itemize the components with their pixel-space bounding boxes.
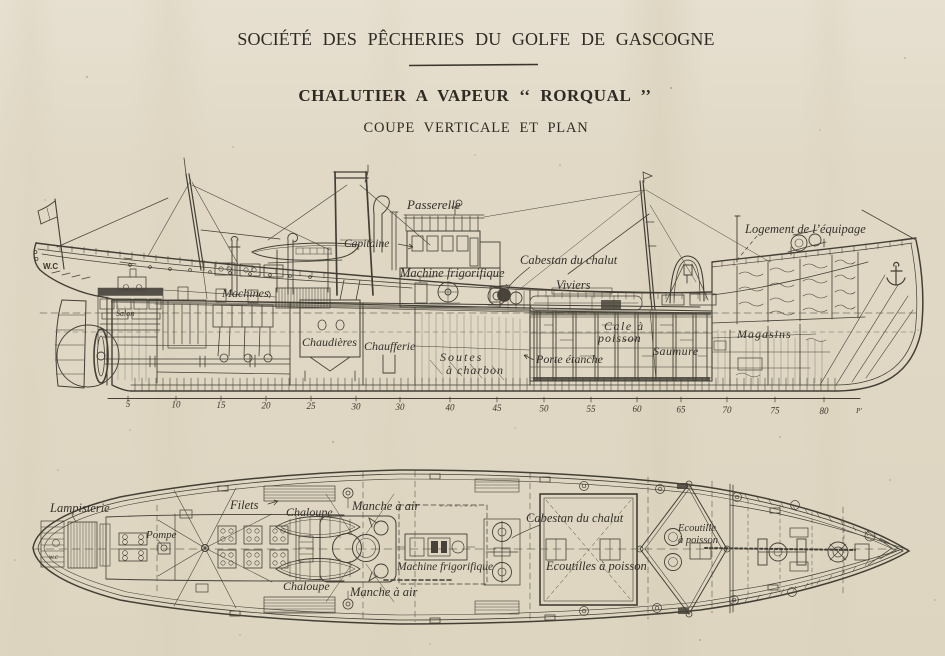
svg-text:SOCIÉTÉ DES PÊCHERIES DU GOLFE: SOCIÉTÉ DES PÊCHERIES DU GOLFE DE GASCOG… <box>237 28 714 49</box>
svg-text:Chaudières: Chaudières <box>302 335 357 349</box>
svg-text:70: 70 <box>723 405 733 415</box>
svg-text:W.C: W.C <box>43 262 58 271</box>
svg-text:50: 50 <box>540 404 550 414</box>
svg-text:Pompe: Pompe <box>145 529 177 541</box>
svg-text:55: 55 <box>587 404 597 414</box>
svg-text:5: 5 <box>126 399 131 409</box>
svg-text:65: 65 <box>677 405 687 415</box>
svg-text:Cabestan du chalut: Cabestan du chalut <box>520 253 618 267</box>
svg-text:30: 30 <box>351 402 362 412</box>
svg-text:Lampisterie: Lampisterie <box>49 501 110 515</box>
svg-text:Ecoutilles à poisson: Ecoutilles à poisson <box>545 559 647 573</box>
svg-text:P': P' <box>855 407 862 415</box>
svg-text:Ecoutille: Ecoutille <box>677 523 716 534</box>
svg-text:Machine frigorifique: Machine frigorifique <box>396 561 493 573</box>
svg-text:Chaufferie: Chaufferie <box>364 339 416 353</box>
svg-text:Machine frigorifique: Machine frigorifique <box>399 266 505 280</box>
svg-text:Passerelle: Passerelle <box>406 197 461 212</box>
svg-text:poisson: poisson <box>597 331 642 345</box>
svg-text:15: 15 <box>217 400 227 410</box>
svg-text:Machines: Machines <box>221 286 269 300</box>
svg-text:Logement de l’équipage: Logement de l’équipage <box>744 222 866 236</box>
svg-text:Magasins: Magasins <box>736 327 792 341</box>
svg-text:Porte étanche: Porte étanche <box>535 352 604 366</box>
svg-text:60: 60 <box>633 404 643 414</box>
svg-text:Manche à air: Manche à air <box>351 499 419 513</box>
svg-text:à charbon: à charbon <box>446 363 504 377</box>
svg-text:Filets: Filets <box>229 498 259 512</box>
svg-text:75: 75 <box>771 406 781 416</box>
svg-text:COUPE VERTICALE ET PLAN: COUPE VERTICALE ET PLAN <box>363 120 588 136</box>
svg-text:20: 20 <box>262 401 272 411</box>
svg-text:30: 30 <box>395 402 406 412</box>
svg-text:10: 10 <box>172 400 182 410</box>
svg-text:Capitaine: Capitaine <box>344 238 389 250</box>
svg-text:CHALUTIER A VAPEUR ‘‘ RORQUAL: CHALUTIER A VAPEUR ‘‘ RORQUAL ’’ <box>298 86 651 105</box>
svg-text:80: 80 <box>820 406 830 416</box>
svg-text:45: 45 <box>493 403 503 413</box>
svg-text:Saumure: Saumure <box>653 344 699 358</box>
svg-text:w.c: w.c <box>49 553 59 561</box>
svg-text:Soutes: Soutes <box>440 350 483 364</box>
svg-text:Chaloupe: Chaloupe <box>283 579 330 593</box>
svg-text:40: 40 <box>446 403 456 413</box>
svg-text:25: 25 <box>307 401 317 411</box>
svg-text:Viviers: Viviers <box>556 278 591 292</box>
svg-text:Chaloupe: Chaloupe <box>286 505 333 519</box>
